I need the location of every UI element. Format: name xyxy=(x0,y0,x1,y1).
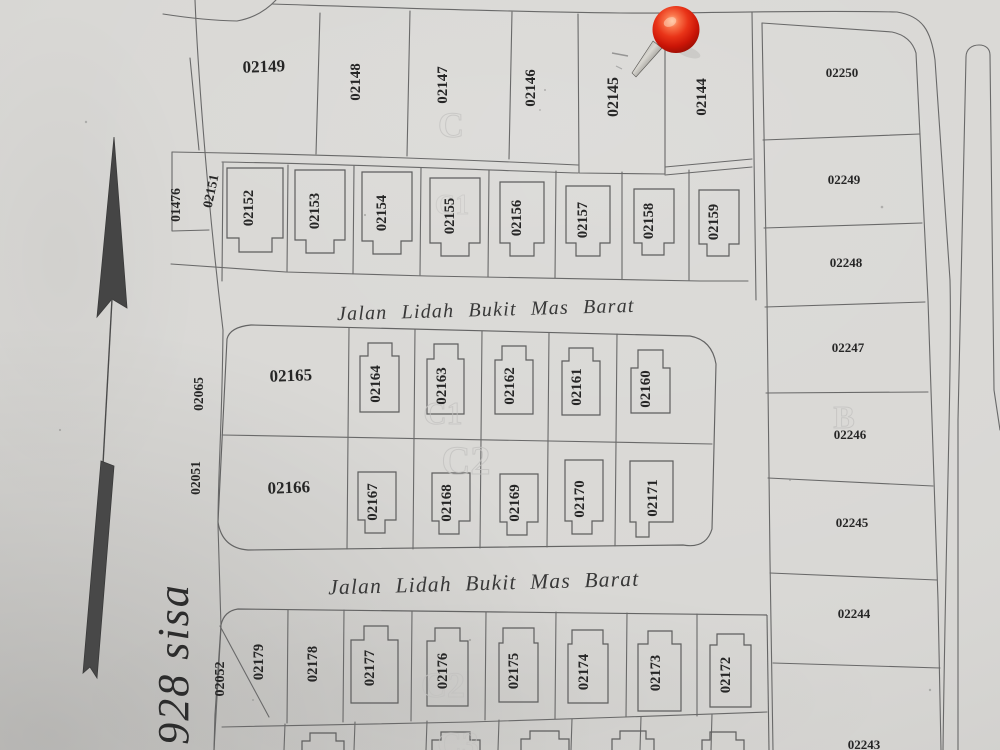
svg-text:928 sisa: 928 sisa xyxy=(149,583,198,744)
svg-text:02245: 02245 xyxy=(836,515,869,530)
svg-text:02176: 02176 xyxy=(435,653,451,689)
svg-text:02153: 02153 xyxy=(307,193,323,229)
svg-text:02169: 02169 xyxy=(507,484,523,522)
svg-text:02174: 02174 xyxy=(576,654,592,690)
svg-text:02244: 02244 xyxy=(838,606,871,621)
svg-text:02152: 02152 xyxy=(241,190,257,226)
svg-text:02243: 02243 xyxy=(848,737,881,750)
svg-text:02158: 02158 xyxy=(641,203,657,239)
svg-text:02157: 02157 xyxy=(575,202,591,238)
svg-text:02170: 02170 xyxy=(572,480,588,518)
svg-text:02065: 02065 xyxy=(191,377,206,411)
svg-text:02156: 02156 xyxy=(509,200,525,236)
svg-text:02165: 02165 xyxy=(269,365,312,385)
svg-text:C3: C3 xyxy=(437,726,479,750)
svg-text:02179: 02179 xyxy=(251,644,267,680)
svg-text:02166: 02166 xyxy=(267,477,310,497)
svg-text:02148: 02148 xyxy=(348,63,364,101)
svg-text:02249: 02249 xyxy=(828,172,861,187)
svg-text:02155: 02155 xyxy=(442,198,458,234)
svg-text:02173: 02173 xyxy=(648,655,664,691)
svg-text:02147: 02147 xyxy=(435,66,451,104)
svg-text:02248: 02248 xyxy=(830,255,863,270)
svg-text:02163: 02163 xyxy=(434,367,450,405)
svg-text:02161: 02161 xyxy=(569,368,585,406)
svg-text:02246: 02246 xyxy=(834,427,867,442)
svg-text:02164: 02164 xyxy=(368,365,384,403)
svg-text:02171: 02171 xyxy=(645,479,661,517)
svg-text:02159: 02159 xyxy=(706,204,722,240)
svg-text:02160: 02160 xyxy=(638,370,654,408)
svg-text:02051: 02051 xyxy=(188,461,203,495)
svg-text:02247: 02247 xyxy=(832,340,865,355)
svg-text:C: C xyxy=(438,105,464,145)
svg-text:02149: 02149 xyxy=(242,56,285,76)
svg-text:02052: 02052 xyxy=(213,662,228,697)
svg-text:01476: 01476 xyxy=(168,188,183,222)
svg-text:02175: 02175 xyxy=(506,653,522,689)
svg-text:02154: 02154 xyxy=(374,195,390,231)
svg-text:02146: 02146 xyxy=(523,69,539,107)
svg-text:02144: 02144 xyxy=(694,78,710,116)
svg-text:C2: C2 xyxy=(442,438,491,483)
svg-text:02177: 02177 xyxy=(362,650,378,686)
svg-text:02250: 02250 xyxy=(826,65,859,80)
svg-text:02178: 02178 xyxy=(305,646,321,682)
svg-text:02172: 02172 xyxy=(718,657,734,693)
svg-text:02162: 02162 xyxy=(502,367,518,405)
svg-text:02168: 02168 xyxy=(439,484,455,522)
svg-text:02167: 02167 xyxy=(365,483,381,521)
svg-text:02145: 02145 xyxy=(605,77,622,117)
